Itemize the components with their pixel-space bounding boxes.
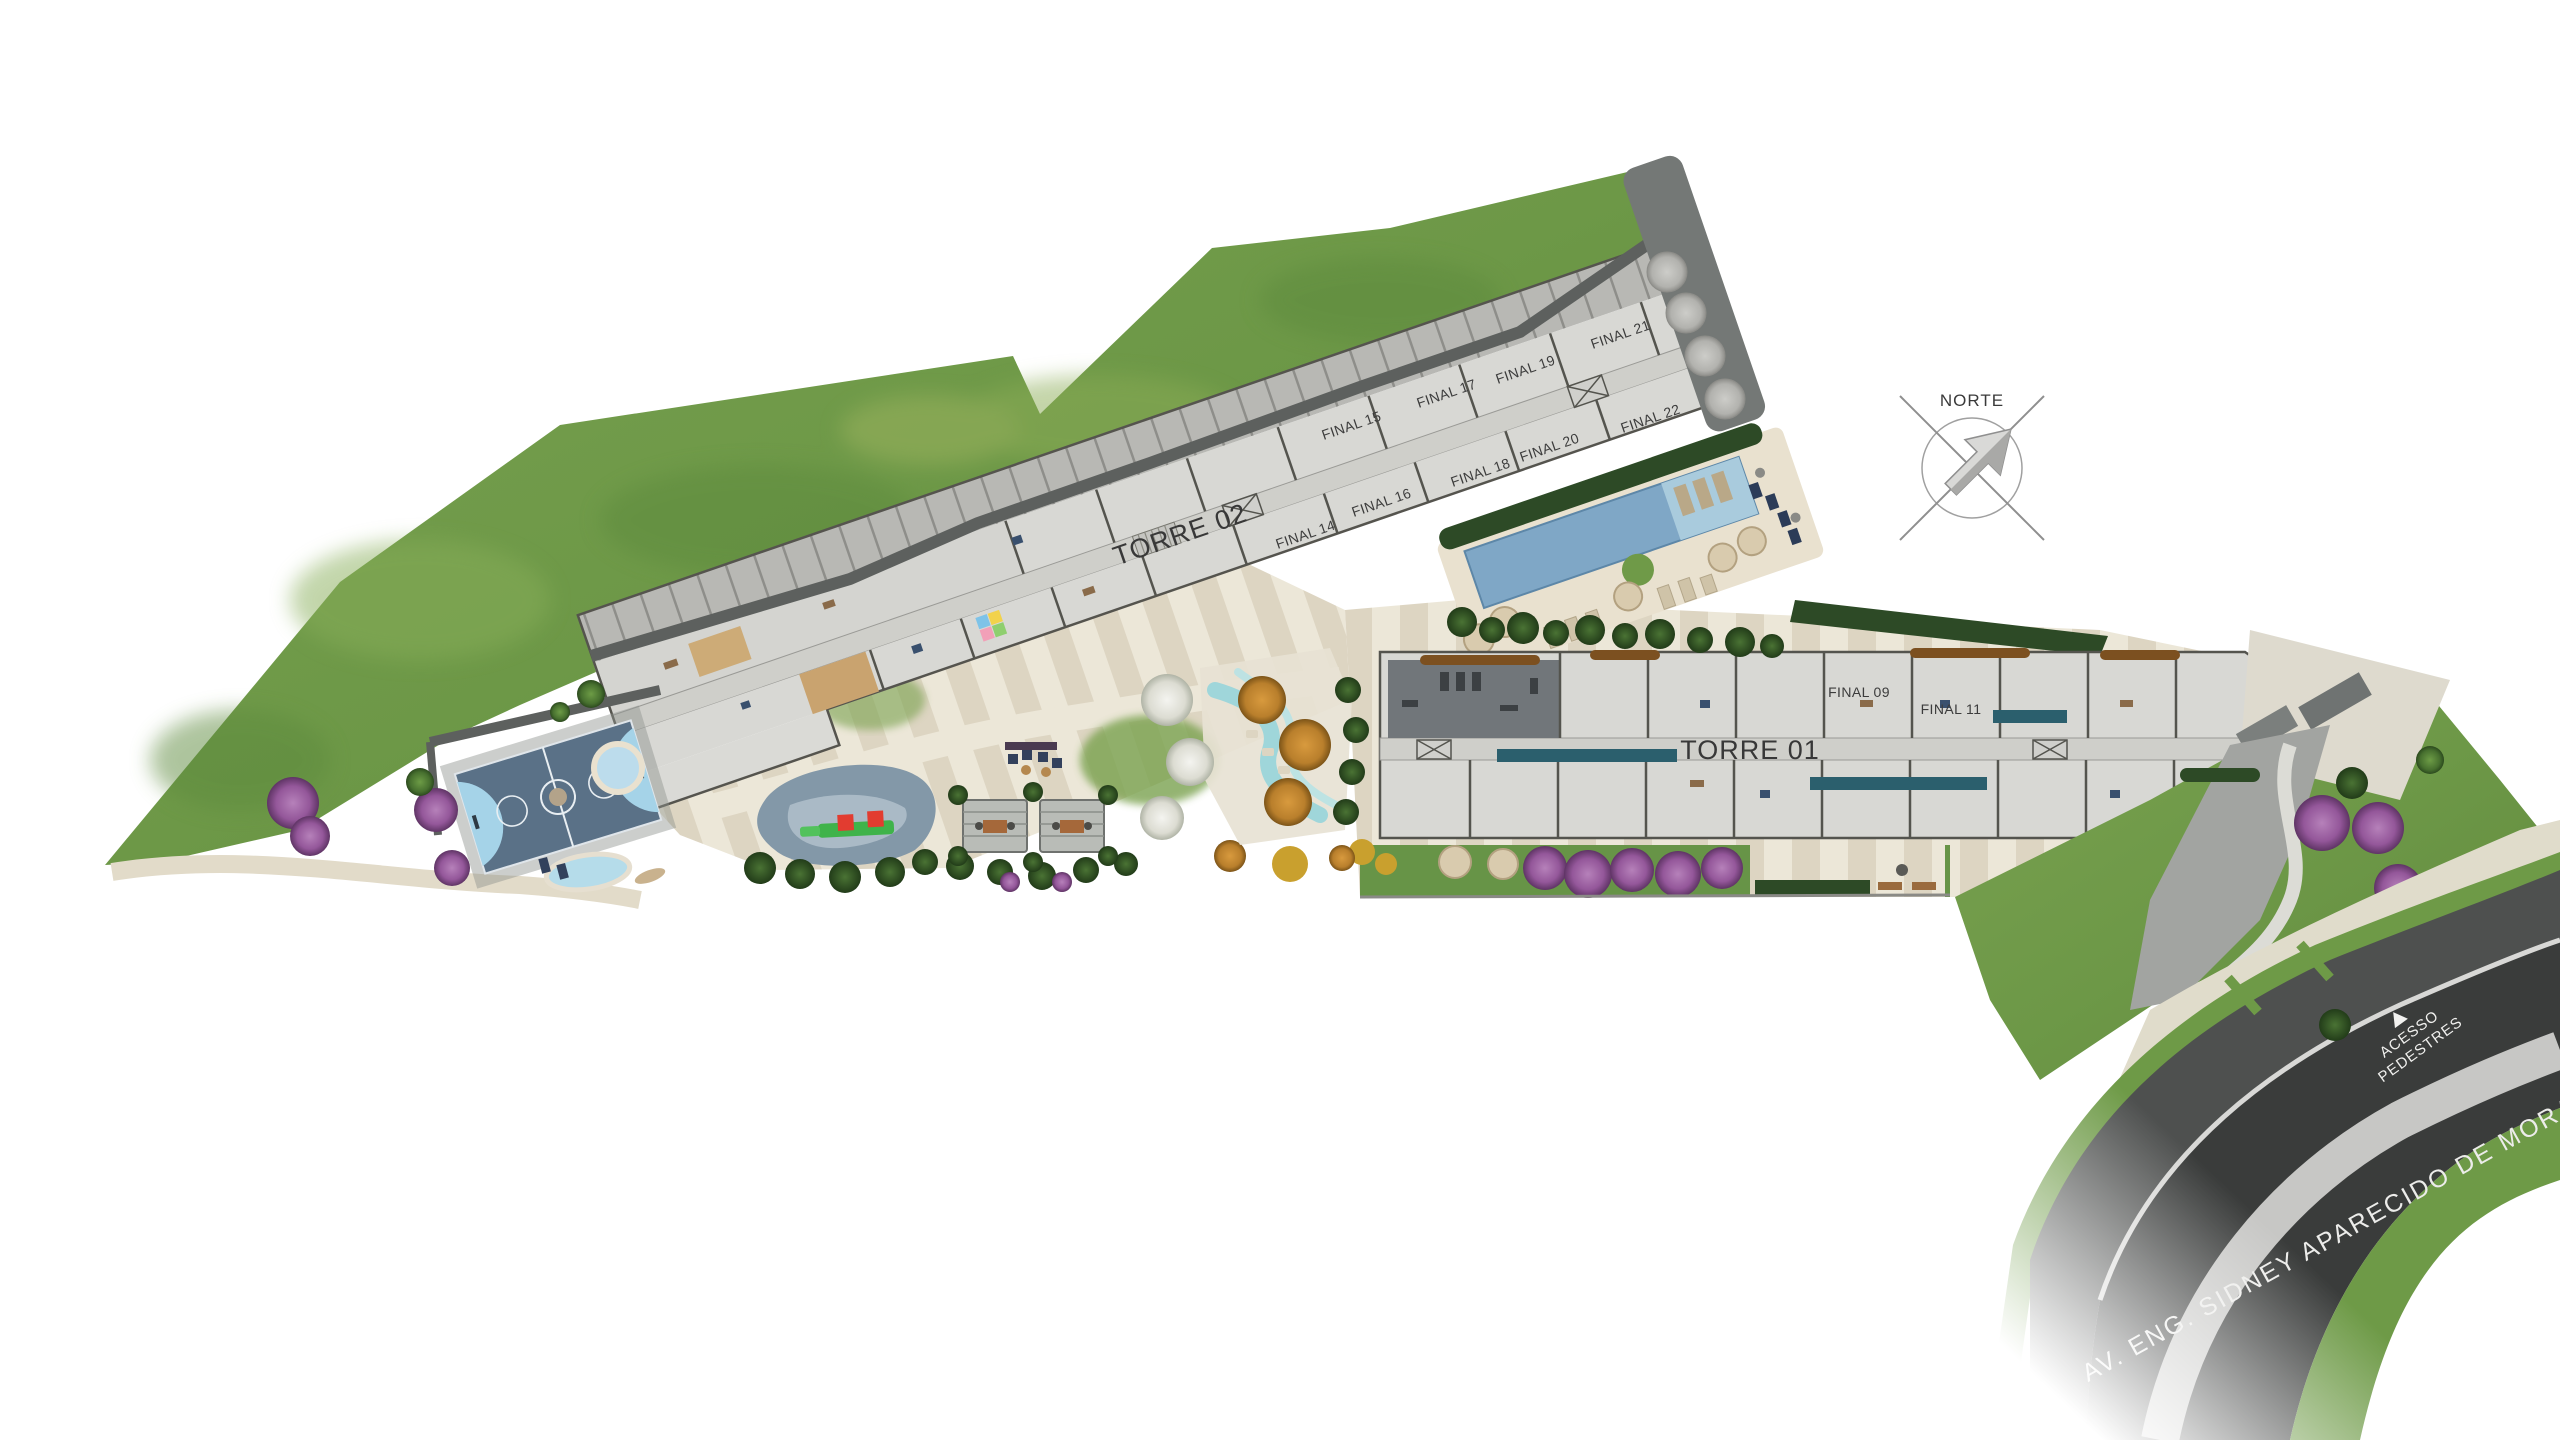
garden-umbrella	[1439, 846, 1471, 878]
round-kids-pool	[594, 744, 642, 792]
bench	[1912, 882, 1936, 890]
compass-label: NORTE	[1940, 391, 2004, 410]
site-plan-drawing: AV. ENG. SIDNEY APARECIDO DE MORAES ACES…	[0, 0, 2560, 1440]
site-plan-canvas: AV. ENG. SIDNEY APARECIDO DE MORAES ACES…	[0, 0, 2560, 1440]
orange-tree	[1264, 778, 1312, 826]
lap-pool	[1810, 777, 1987, 790]
bench	[1878, 882, 1902, 890]
orange-tree	[1279, 719, 1331, 771]
unit-label-final-11: FINAL 11	[1921, 701, 1982, 717]
pergola-table	[1060, 820, 1084, 833]
garden-umbrella	[1488, 849, 1518, 879]
water-tank	[1666, 293, 1706, 333]
torre-01-gym	[1388, 660, 1560, 738]
purple-tree	[2294, 795, 2350, 851]
water-tank	[1647, 252, 1687, 292]
torre-01-label: TORRE 01	[1680, 735, 1820, 765]
south-garden-band	[1349, 839, 1950, 898]
spa-pool	[1993, 710, 2067, 723]
indoor-lap-pool	[1497, 749, 1677, 762]
water-tank	[1685, 336, 1725, 376]
unit-label-final-09: FINAL 09	[1828, 684, 1890, 700]
orange-tree	[1238, 676, 1286, 724]
compass: NORTE	[1900, 391, 2044, 540]
water-tank	[1705, 379, 1745, 419]
golden-shrubs	[1214, 840, 1355, 882]
pergola-table	[983, 820, 1007, 833]
purple-tree	[2352, 802, 2404, 854]
